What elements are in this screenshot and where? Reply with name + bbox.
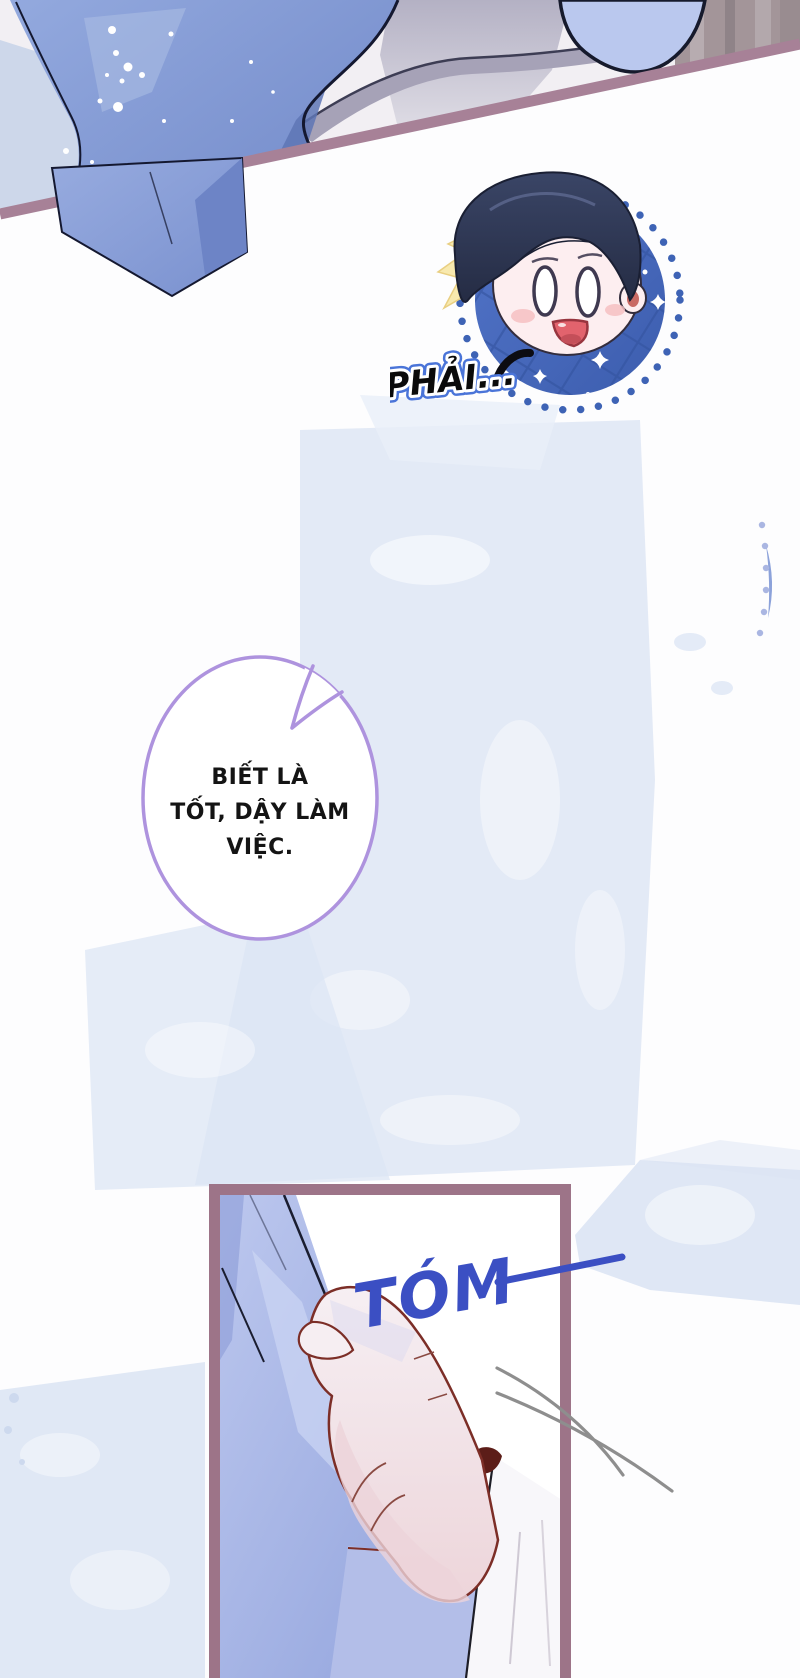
wash-small-blobs bbox=[674, 633, 733, 695]
bubble-dialogue: BIẾT LÀ TỐT, DẬY LÀM VIỆC. bbox=[140, 760, 380, 865]
bottom-panel: TÓM bbox=[0, 1100, 800, 1678]
chibi-eye-left bbox=[534, 267, 556, 315]
bubble-line: VIỆC. bbox=[140, 830, 380, 865]
chibi-sticker: PHẢI... PHẢI... PHẢI... bbox=[390, 150, 720, 420]
bubble-line: TỐT, DẬY LÀM bbox=[140, 795, 380, 830]
jacket-hanging-corner bbox=[52, 158, 247, 296]
sticker-caption: PHẢI... PHẢI... PHẢI... bbox=[390, 349, 517, 406]
svg-text:PHẢI...: PHẢI... bbox=[390, 349, 517, 406]
edge-sticker-fragment bbox=[757, 522, 772, 636]
chibi-eye-right bbox=[577, 268, 599, 316]
comic-page: PHẢI... PHẢI... PHẢI... BIẾT LÀ TỐT, DẬY… bbox=[0, 0, 800, 1678]
bubble-line: BIẾT LÀ bbox=[140, 760, 380, 795]
crescent-icon bbox=[766, 545, 772, 618]
